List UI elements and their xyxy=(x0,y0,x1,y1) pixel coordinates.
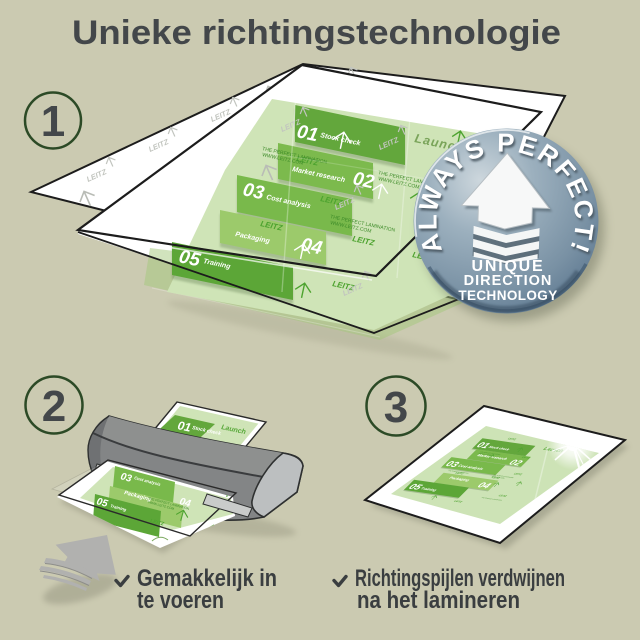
svg-text:3: 3 xyxy=(384,383,408,432)
svg-text:na het lamineren: na het lamineren xyxy=(357,587,520,614)
svg-text:TECHNOLOGY: TECHNOLOGY xyxy=(458,288,557,303)
svg-text:DIRECTION: DIRECTION xyxy=(464,273,553,289)
svg-text:1: 1 xyxy=(41,97,65,146)
svg-text:Unieke richtingstechnologie: Unieke richtingstechnologie xyxy=(72,14,561,52)
svg-text:te voeren: te voeren xyxy=(137,587,224,614)
svg-text:2: 2 xyxy=(42,382,66,431)
